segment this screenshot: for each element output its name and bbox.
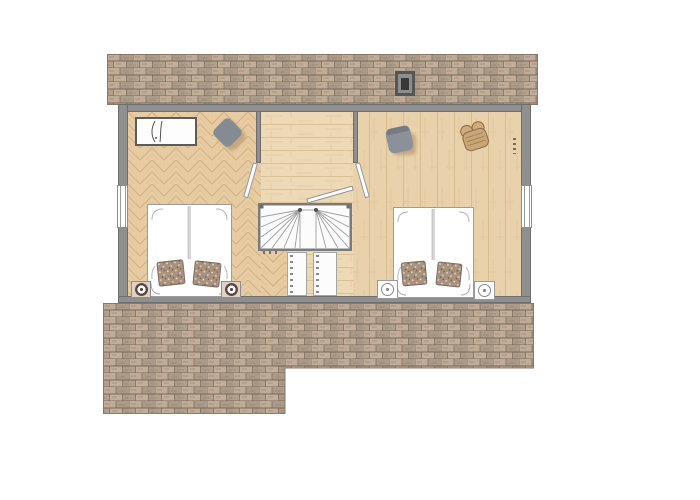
tub-chair-right-room (385, 125, 417, 157)
nightstand-right-room-a (377, 280, 398, 299)
dresser-decor (137, 119, 195, 144)
nightstand-left-room-a (131, 281, 151, 298)
lamp-icon (381, 283, 394, 296)
wall-top (118, 104, 531, 112)
chair-seat (385, 125, 415, 155)
dresser (135, 117, 197, 146)
partition-wall-right (353, 111, 358, 163)
window-right (521, 185, 532, 228)
balustrade-right (313, 252, 337, 296)
partition-wall-left (256, 111, 261, 163)
bed-left (147, 204, 232, 297)
lamp-icon (225, 283, 238, 296)
balustrade-left (287, 252, 307, 296)
bed-right (393, 207, 474, 298)
nightstand-left-room-b (221, 281, 241, 298)
vent-marks-right-wall (513, 138, 516, 154)
roof-top (107, 54, 538, 105)
chimney (395, 71, 415, 96)
lamp-icon (135, 283, 148, 296)
chimney-flue-icon (401, 78, 409, 90)
floor-patch-herringbone (261, 250, 287, 296)
lamp-icon (478, 284, 491, 297)
floor-plan-canvas (0, 0, 700, 500)
roof-bottom (103, 303, 535, 415)
stair-edge-marks (263, 251, 281, 254)
window-left (117, 185, 128, 228)
nightstand-right-room-b (474, 281, 495, 300)
winder-staircase (258, 203, 352, 251)
armchair-left-room (212, 118, 246, 152)
